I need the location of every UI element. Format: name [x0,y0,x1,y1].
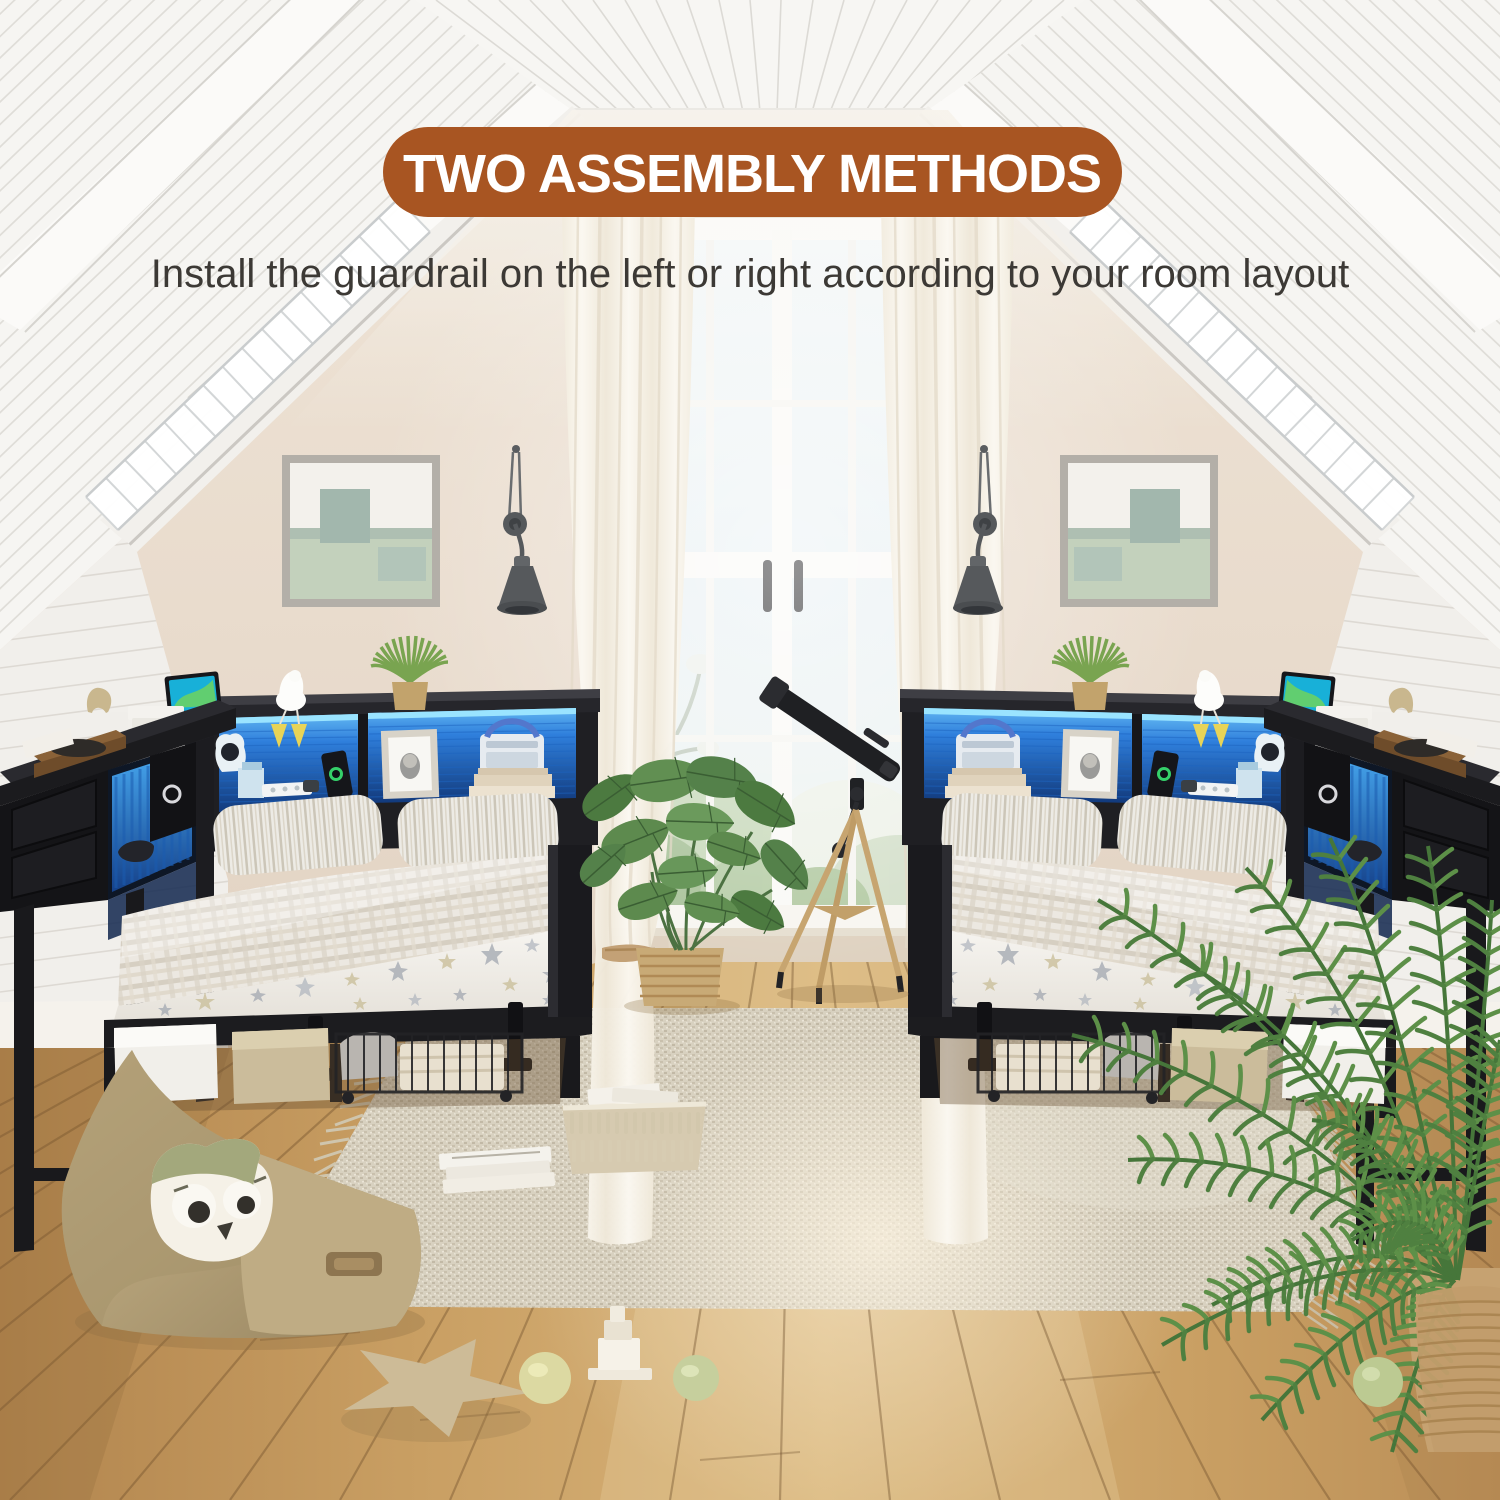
svg-text:TWO ASSEMBLY METHODS: TWO ASSEMBLY METHODS [403,144,1101,204]
svg-text:Install the guardrail on the l: Install the guardrail on the left or rig… [151,252,1349,296]
